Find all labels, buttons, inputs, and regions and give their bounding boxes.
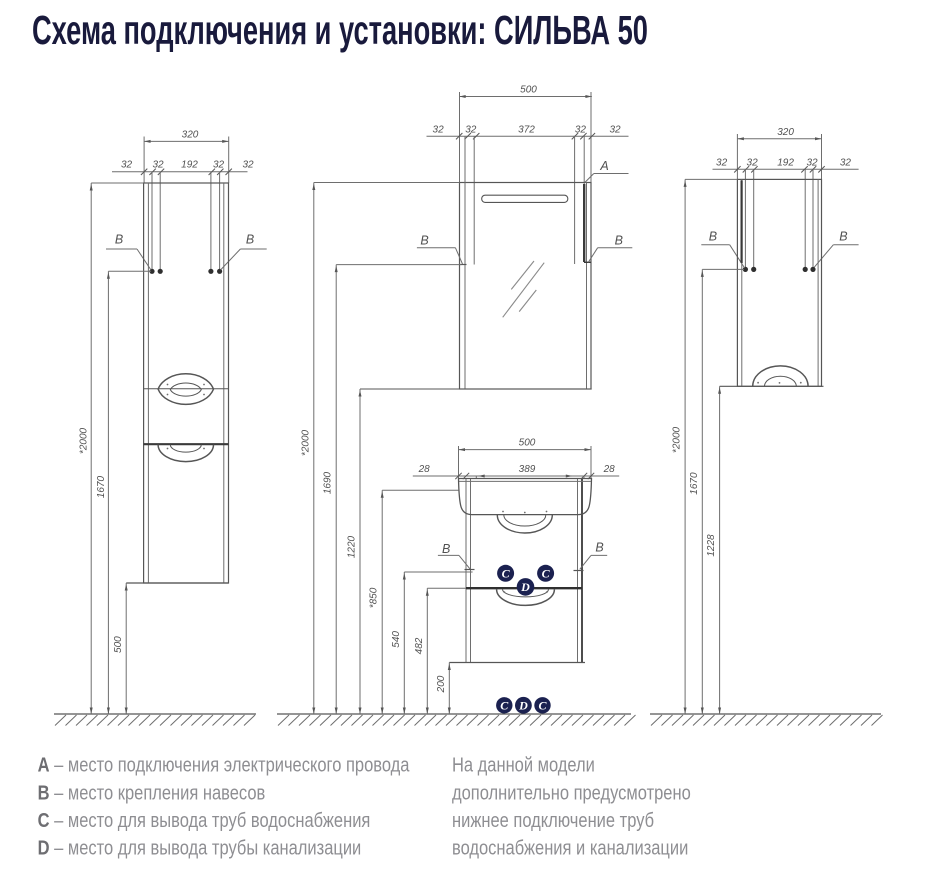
svg-text:32: 32: [152, 160, 164, 171]
svg-text:B: B: [442, 542, 450, 556]
svg-text:32: 32: [121, 160, 133, 171]
svg-text:500: 500: [520, 85, 537, 96]
svg-text:32: 32: [716, 158, 728, 169]
svg-text:1690: 1690: [323, 471, 334, 494]
svg-text:D: D: [520, 580, 530, 594]
svg-text:C: C: [500, 698, 509, 712]
svg-text:192: 192: [181, 160, 198, 171]
svg-text:1228: 1228: [706, 534, 717, 557]
svg-text:389: 389: [519, 464, 536, 475]
svg-text:A – место подключения электрич: A – место подключения электрического про…: [38, 753, 411, 776]
svg-text:водоснабжения и канализации: водоснабжения и канализации: [452, 836, 688, 859]
svg-text:*2000: *2000: [672, 426, 683, 453]
svg-text:C: C: [542, 566, 551, 580]
svg-text:1220: 1220: [347, 535, 358, 558]
svg-text:32: 32: [840, 158, 852, 169]
svg-text:B: B: [246, 233, 254, 247]
svg-text:32: 32: [465, 125, 477, 136]
svg-text:B: B: [839, 229, 847, 243]
svg-text:32: 32: [806, 158, 818, 169]
svg-text:Схема подключения и установки:: Схема подключения и установки: СИЛЬВА 50: [32, 7, 648, 53]
svg-text:*2000: *2000: [79, 427, 90, 454]
svg-text:B: B: [420, 233, 428, 247]
svg-text:C: C: [502, 566, 511, 580]
svg-text:C – место для вывода труб водо: C – место для вывода труб водоснабжения: [38, 808, 371, 831]
svg-text:32: 32: [242, 160, 254, 171]
svg-text:C: C: [538, 698, 547, 712]
svg-text:192: 192: [777, 158, 794, 169]
svg-text:B: B: [595, 541, 603, 555]
svg-text:дополнительно предусмотрено: дополнительно предусмотрено: [452, 781, 691, 804]
svg-text:200: 200: [436, 675, 447, 693]
svg-text:B: B: [115, 233, 123, 247]
svg-text:320: 320: [182, 130, 199, 141]
svg-text:28: 28: [603, 464, 616, 475]
svg-text:A: A: [599, 159, 608, 173]
svg-text:372: 372: [518, 125, 535, 136]
svg-text:1670: 1670: [689, 472, 700, 495]
svg-text:D – место для вывода трубы кан: D – место для вывода трубы канализации: [38, 836, 362, 859]
svg-text:B: B: [615, 233, 623, 247]
svg-text:500: 500: [113, 636, 124, 653]
svg-text:32: 32: [609, 125, 621, 136]
svg-text:320: 320: [777, 127, 794, 138]
svg-text:32: 32: [433, 125, 445, 136]
svg-text:На данной модели: На данной модели: [452, 753, 595, 776]
svg-text:482: 482: [414, 637, 425, 654]
svg-text:*2000: *2000: [300, 429, 311, 456]
svg-text:540: 540: [391, 631, 402, 648]
svg-text:28: 28: [418, 464, 431, 475]
svg-text:D: D: [518, 698, 528, 712]
svg-text:B: B: [709, 230, 717, 244]
svg-text:B – место крепления навесов: B – место крепления навесов: [38, 781, 266, 804]
svg-text:*850: *850: [369, 587, 380, 608]
svg-text:1670: 1670: [96, 475, 107, 498]
svg-text:нижнее подключение труб: нижнее подключение труб: [452, 808, 654, 831]
svg-text:500: 500: [519, 438, 536, 449]
